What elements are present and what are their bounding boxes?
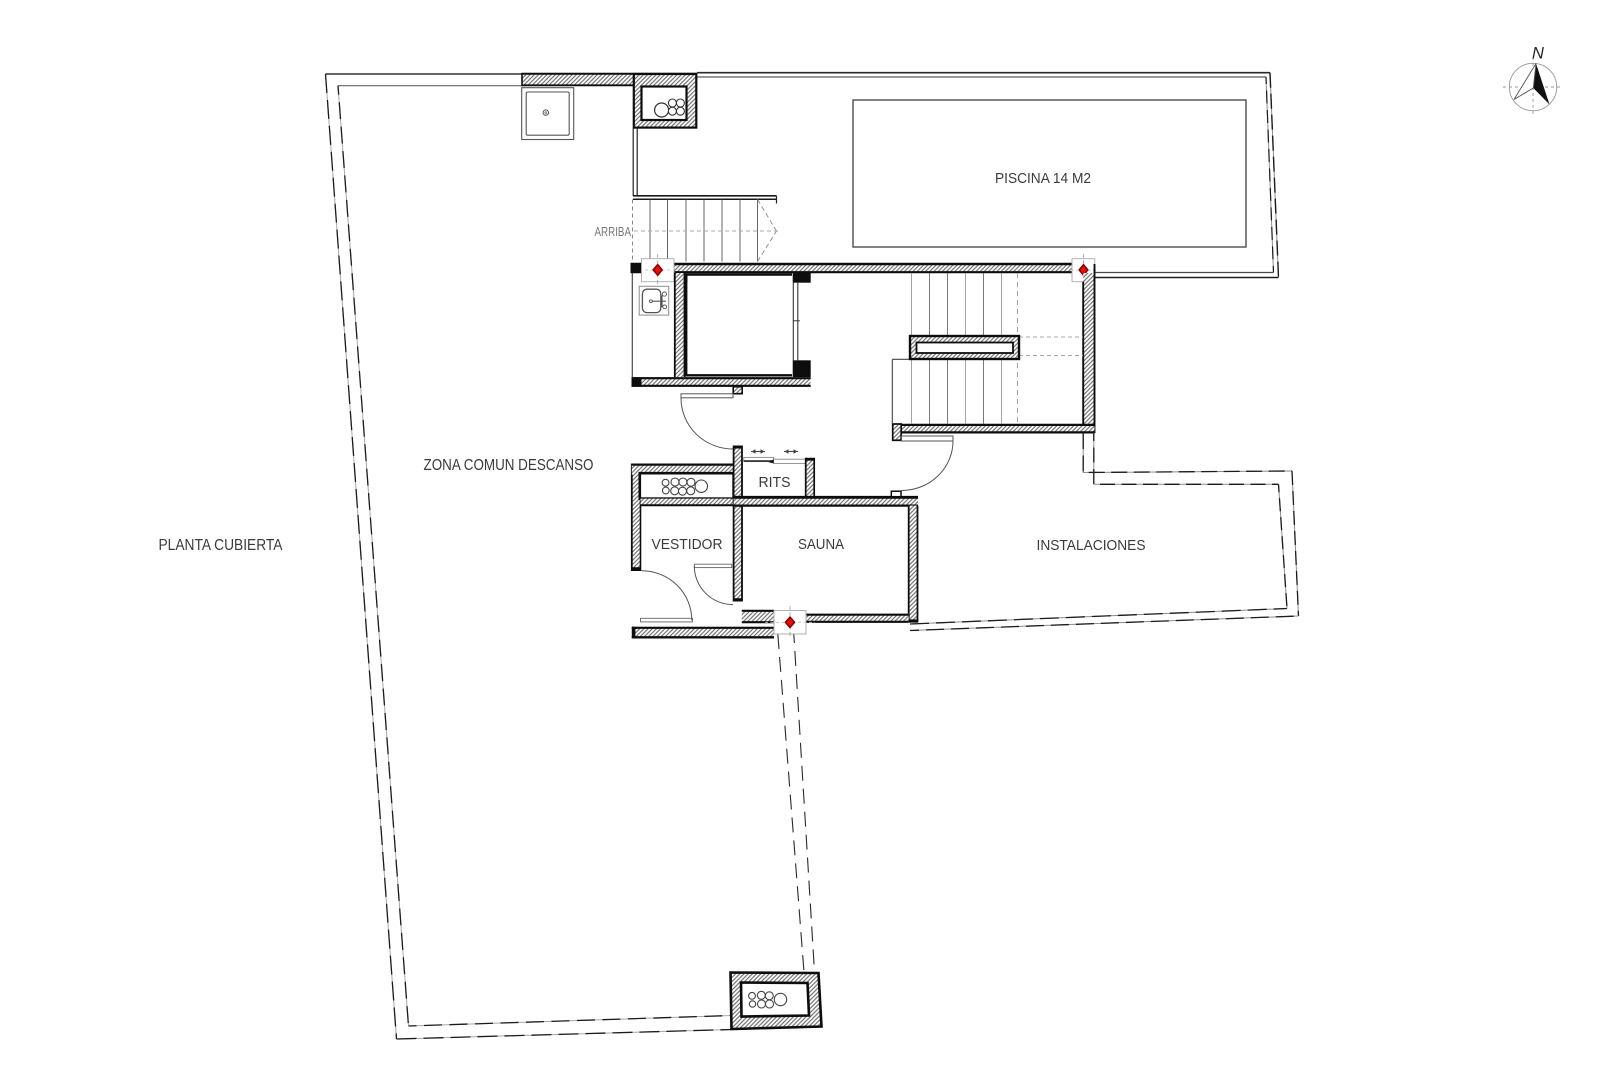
svg-text:INSTALACIONES: INSTALACIONES [1037, 537, 1146, 554]
svg-text:N: N [1532, 45, 1544, 63]
svg-text:VESTIDOR: VESTIDOR [652, 536, 723, 553]
svg-text:PISCINA 14 M2: PISCINA 14 M2 [995, 170, 1091, 187]
svg-text:RITS: RITS [759, 475, 791, 491]
svg-text:ZONA COMUN DESCANSO: ZONA COMUN DESCANSO [424, 457, 594, 474]
svg-text:SAUNA: SAUNA [798, 536, 844, 553]
svg-text:PLANTA CUBIERTA: PLANTA CUBIERTA [159, 537, 283, 554]
svg-text:ARRIBA: ARRIBA [595, 225, 632, 239]
